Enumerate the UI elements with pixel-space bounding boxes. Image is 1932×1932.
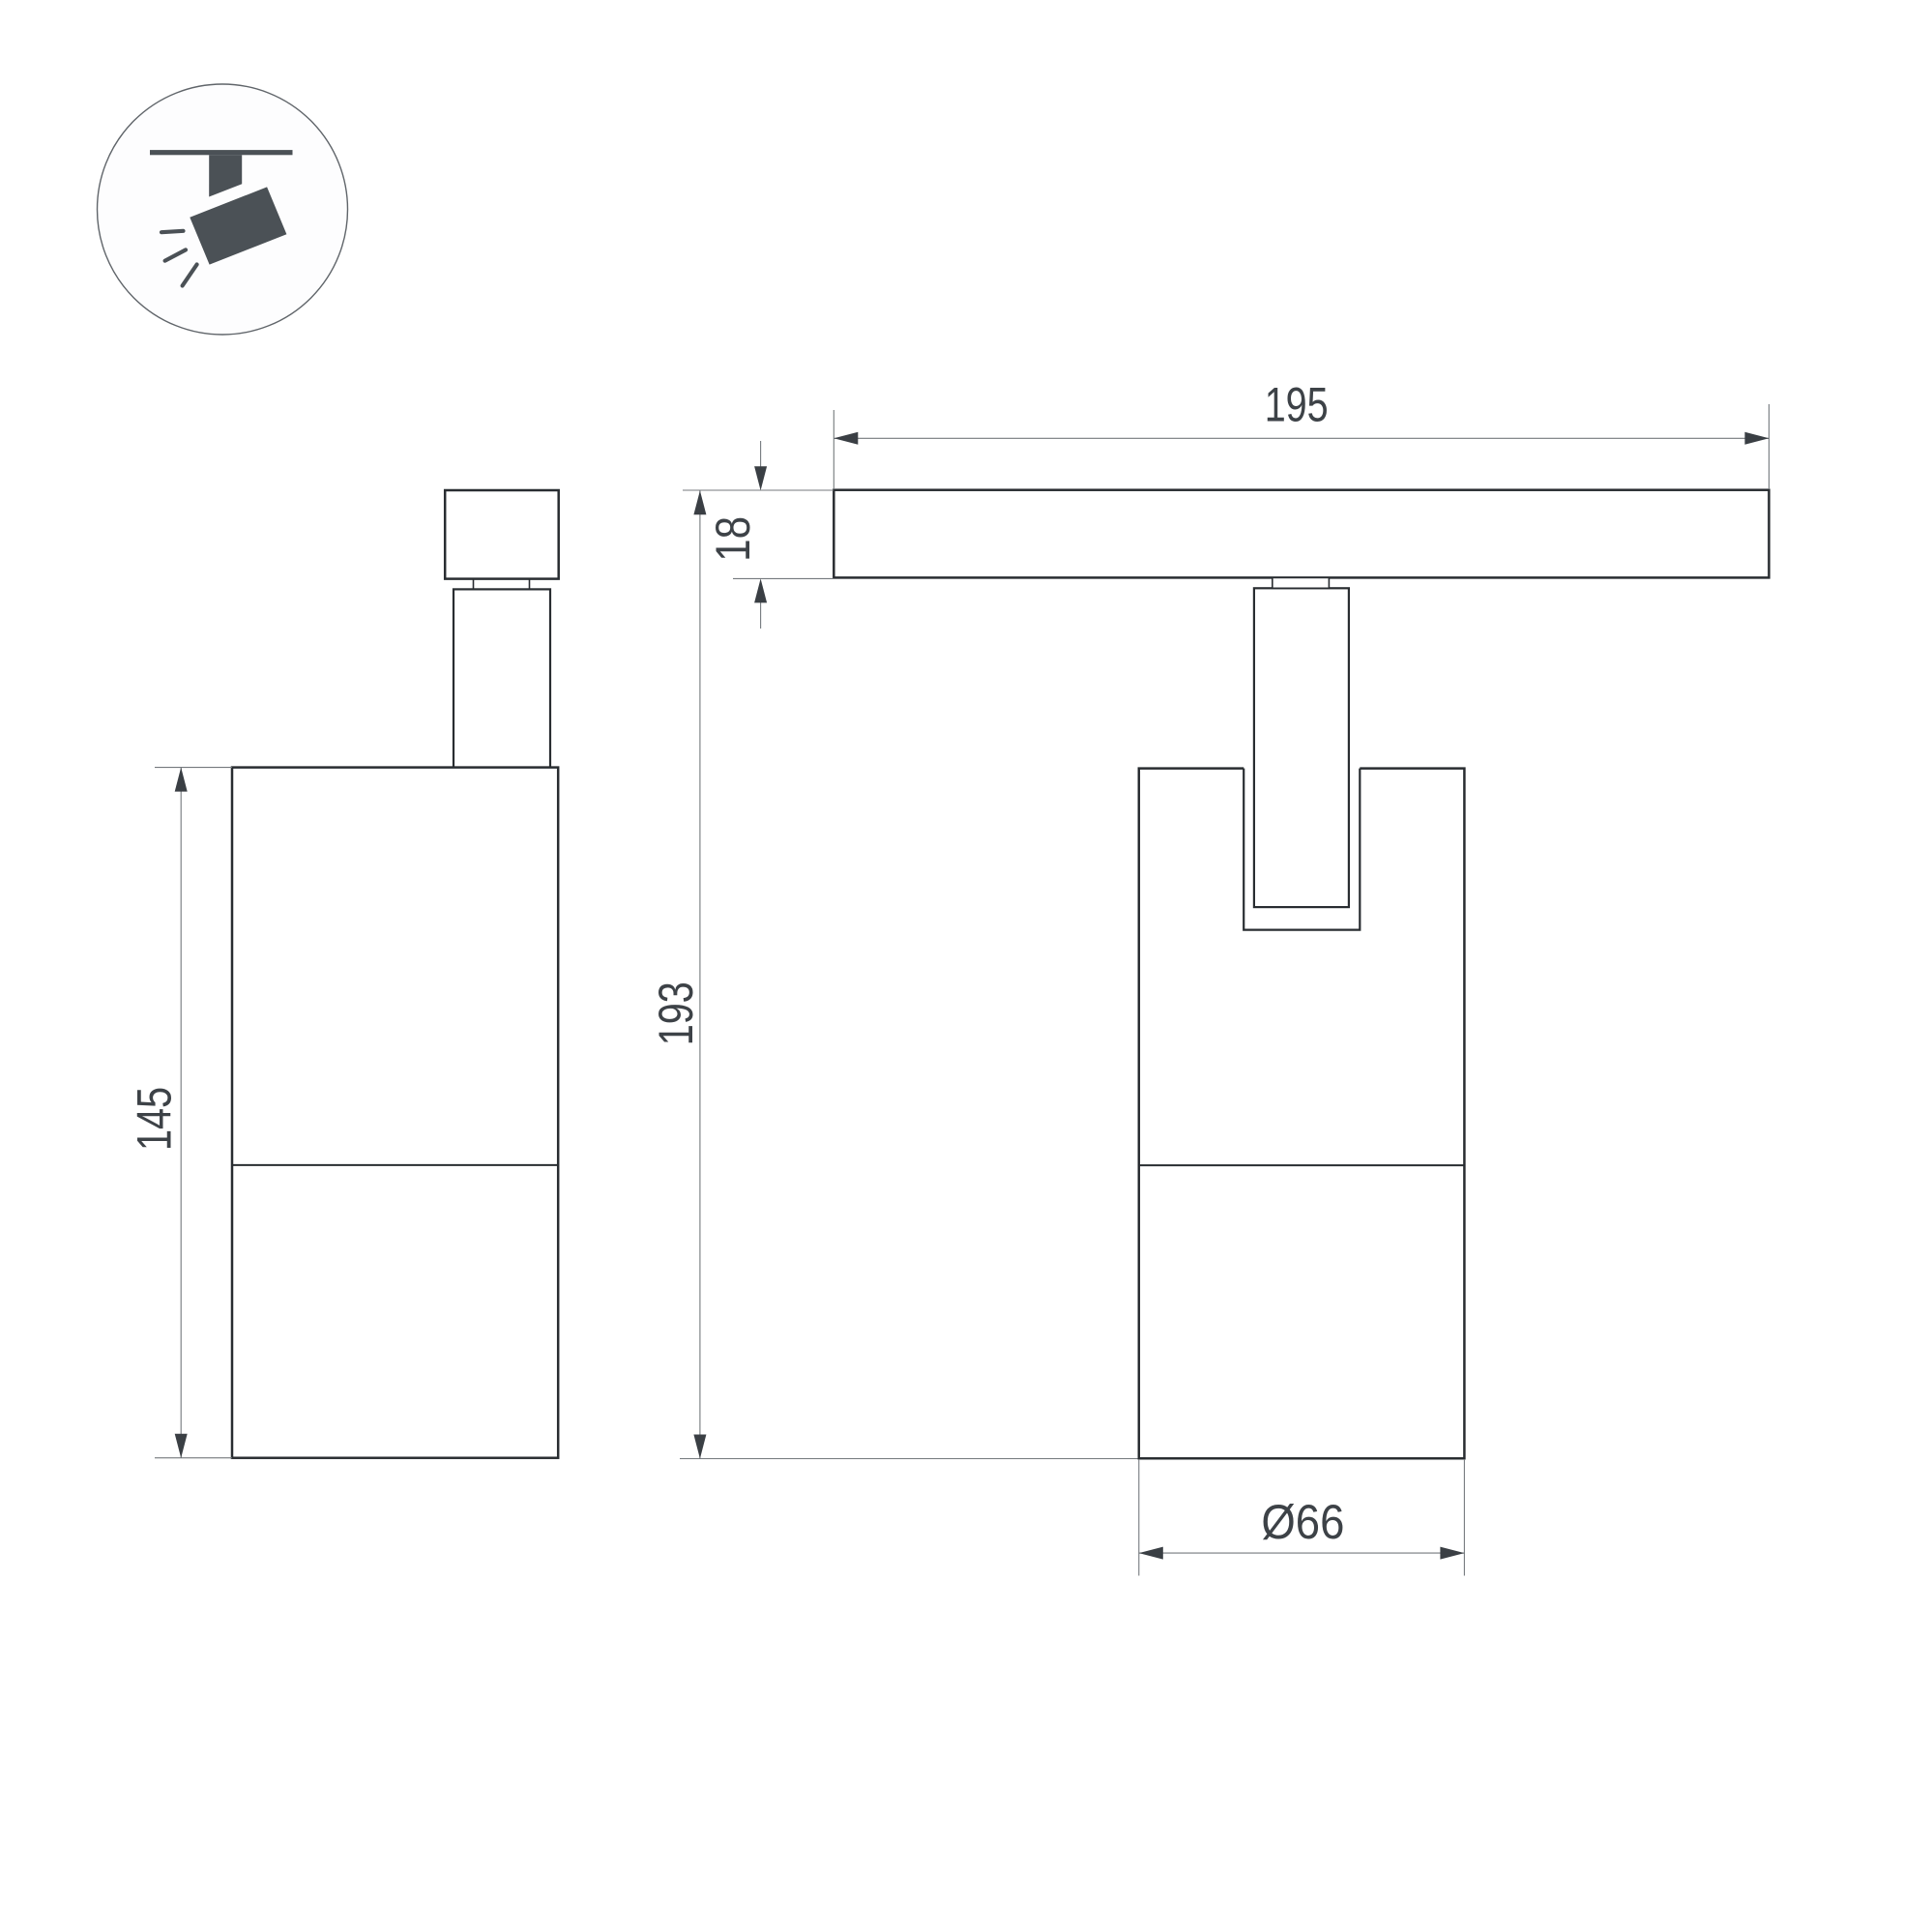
svg-text:18: 18 (706, 516, 760, 562)
svg-text:Ø66: Ø66 (1261, 1495, 1344, 1549)
svg-text:195: 195 (1265, 378, 1329, 432)
svg-text:145: 145 (127, 1087, 181, 1151)
svg-text:193: 193 (649, 981, 703, 1045)
